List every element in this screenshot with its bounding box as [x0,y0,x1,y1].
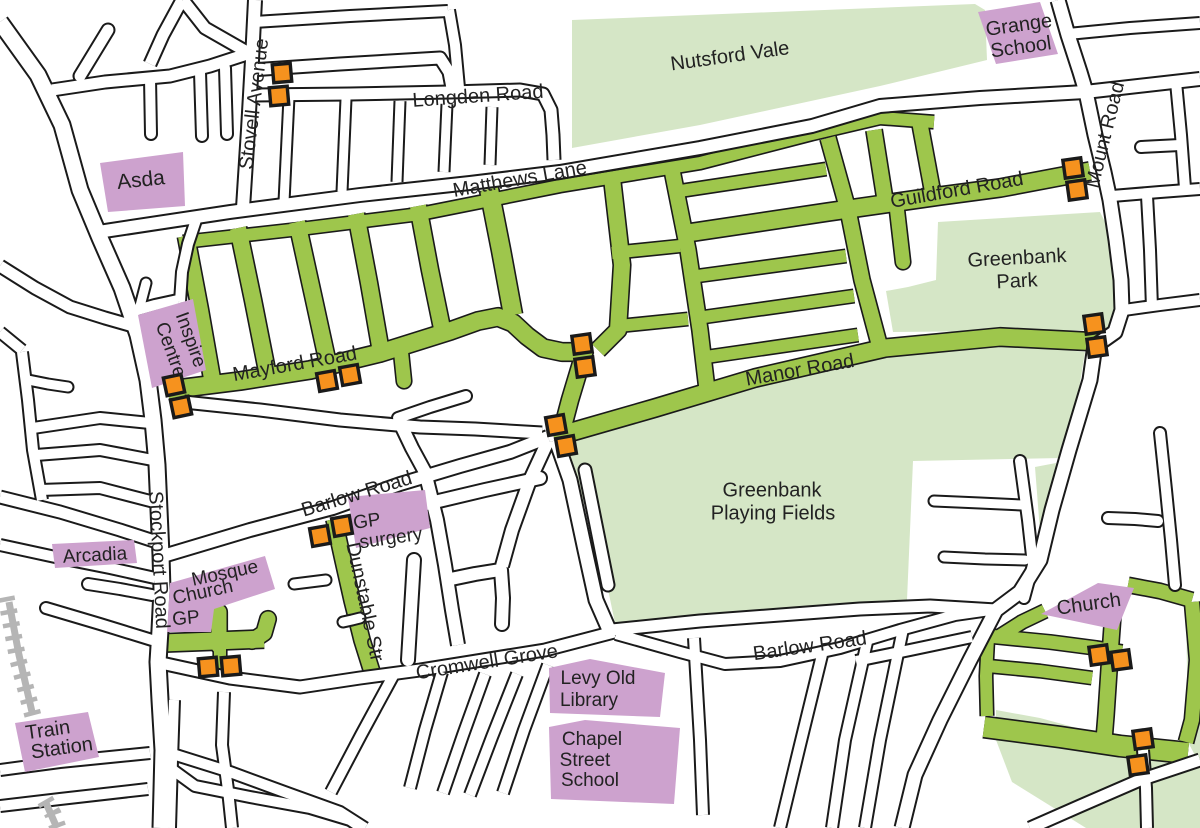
svg-text:Street: Street [560,750,611,771]
svg-text:Chapel: Chapel [562,729,622,750]
svg-text:Arcadia: Arcadia [62,543,128,567]
svg-text:Levy Old: Levy Old [561,668,636,689]
svg-text:GP: GP [171,607,200,630]
svg-text:School: School [561,770,619,791]
svg-text:Park: Park [996,269,1039,293]
svg-text:Library: Library [560,690,619,711]
svg-text:Greenbank: Greenbank [723,479,823,501]
svg-text:Playing Fields: Playing Fields [711,502,836,524]
